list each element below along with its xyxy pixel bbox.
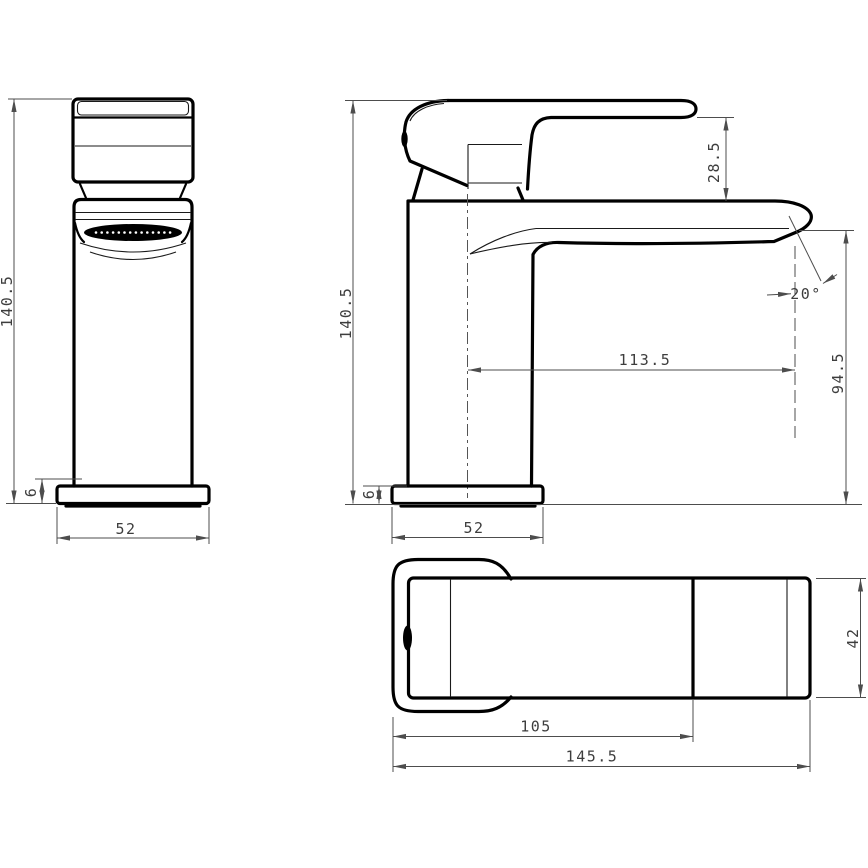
side-dim-handle-to-spout: 28.5 [697, 118, 734, 202]
handle-to-spout-label: 28.5 [705, 141, 723, 183]
front-body [74, 200, 192, 487]
front-base-width-label: 52 [115, 520, 136, 538]
lever-pin-dot-top [403, 626, 412, 651]
side-body-and-spout [408, 194, 811, 498]
side-view: 140.5 6 52 28.5 113.5 94.5 [337, 101, 862, 545]
front-overall-height-label: 140.5 [0, 275, 16, 328]
side-dim-base-thickness: 6 [360, 486, 407, 504]
side-dim-base-depth: 52 [392, 507, 543, 544]
front-view: 140.5 6 52 [0, 99, 209, 544]
front-dim-base-width: 52 [57, 507, 209, 544]
side-dim-spout-reach: 113.5 [468, 351, 795, 370]
overall-length-label: 145.5 [566, 748, 619, 766]
top-view: 42 105 145.5 [393, 560, 866, 773]
side-overall-height-label: 140.5 [337, 287, 355, 340]
grip-length-label: 105 [520, 718, 552, 736]
side-dim-outlet-angle: 20° [767, 216, 837, 438]
outlet-angle-label: 20° [790, 285, 822, 303]
front-base-thickness-label: 6 [22, 487, 40, 498]
side-dim-overall-height: 140.5 [337, 101, 447, 504]
outlet-height-label: 94.5 [829, 352, 847, 394]
front-handle [73, 99, 193, 182]
handle-width-label: 42 [844, 627, 862, 648]
cartridge-outline [468, 145, 522, 190]
front-neck [80, 184, 186, 198]
lever-pin-dot [401, 131, 407, 147]
side-base-thickness-label: 6 [360, 489, 378, 500]
technical-drawing-canvas: 140.5 6 52 [0, 0, 868, 868]
side-dim-outlet-height: 94.5 [799, 231, 854, 505]
drawing-sheet: 140.5 6 52 [0, 0, 868, 868]
spout-reach-label: 113.5 [619, 351, 672, 369]
side-lever-handle [401, 101, 696, 201]
top-lever-outline [403, 578, 810, 698]
side-base-depth-label: 52 [463, 519, 484, 537]
front-dim-overall-height: 140.5 [0, 99, 72, 504]
front-base [57, 486, 209, 506]
top-dim-handle-width: 42 [816, 579, 866, 698]
aerator [84, 224, 182, 241]
